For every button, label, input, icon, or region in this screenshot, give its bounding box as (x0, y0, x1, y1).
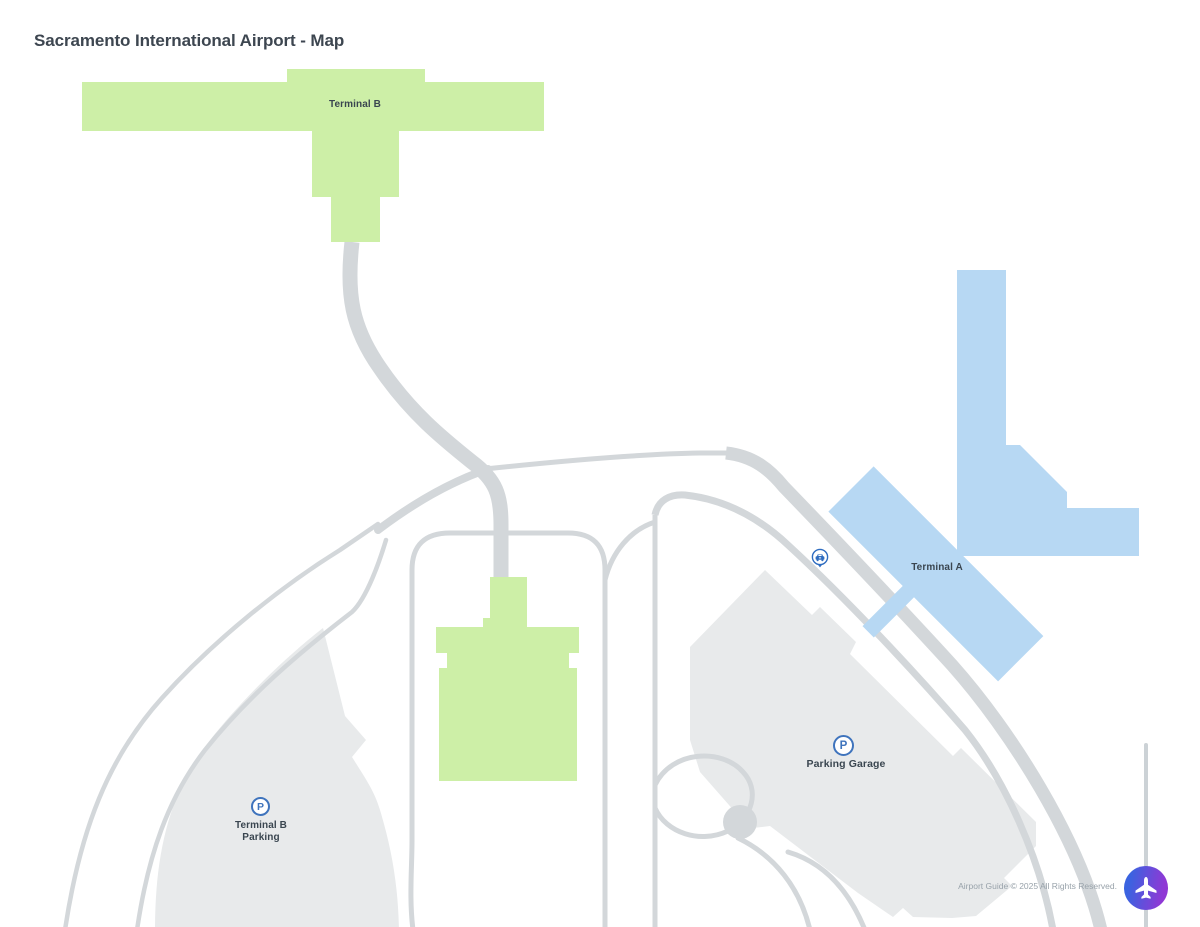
parking-icon: P (840, 740, 848, 752)
copyright-note: Airport Guide © 2025 All Rights Reserved… (958, 881, 1117, 891)
airport-map-page: Sacramento International Airport - Map T… (0, 0, 1200, 927)
central-building-shape (436, 577, 579, 781)
parking-icon: P (257, 801, 264, 813)
terminal-b-shape (82, 69, 544, 242)
car-icon (811, 548, 829, 570)
parking-garage-marker[interactable]: P (833, 735, 854, 756)
page-title: Sacramento International Airport - Map (34, 31, 344, 51)
airplane-button[interactable] (1124, 866, 1168, 910)
terminal-a-shape (828, 270, 1139, 681)
ground-transport-marker[interactable] (811, 548, 829, 570)
terminal-buildings (82, 69, 1139, 781)
map-canvas (0, 0, 1200, 927)
terminal-a-label: Terminal A (911, 562, 963, 574)
road (738, 838, 810, 927)
road (378, 469, 488, 530)
road (605, 522, 655, 580)
airplane-icon (1133, 875, 1159, 901)
terminal-b-parking-marker[interactable]: P (251, 797, 270, 816)
parking-surfaces (155, 570, 1036, 927)
parking-garage-label: Parking Garage (806, 758, 885, 770)
road (485, 453, 730, 469)
roundabout (723, 805, 757, 839)
terminal-b-label: Terminal B (329, 99, 381, 111)
terminal-b-parking-label: Terminal B Parking (235, 820, 287, 844)
